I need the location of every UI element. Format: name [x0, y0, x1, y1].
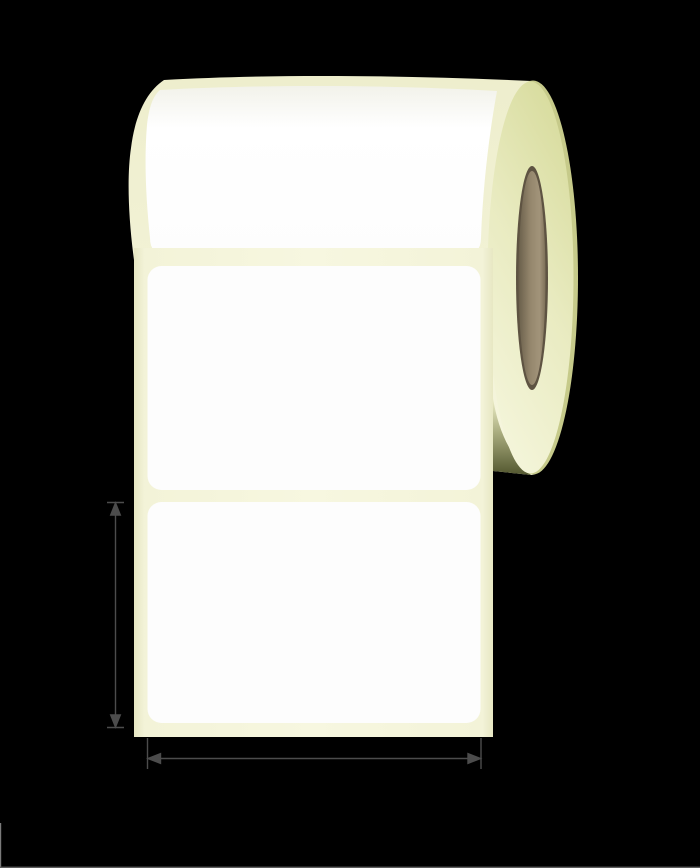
label-roll-illustration [0, 0, 700, 868]
width-dimension-arrow [148, 738, 482, 769]
label-bottom [148, 502, 481, 723]
height-dim-arrowhead-down [111, 715, 121, 727]
label-middle [148, 266, 481, 490]
image-edge-artifact-left [0, 823, 1, 868]
wrapped-label [146, 86, 497, 255]
width-dim-arrowhead-left [148, 754, 161, 764]
height-dim-arrowhead-up [111, 503, 121, 515]
width-dim-arrowhead-right [468, 754, 481, 764]
core-hole [519, 171, 546, 385]
height-dimension-arrow [107, 503, 124, 728]
